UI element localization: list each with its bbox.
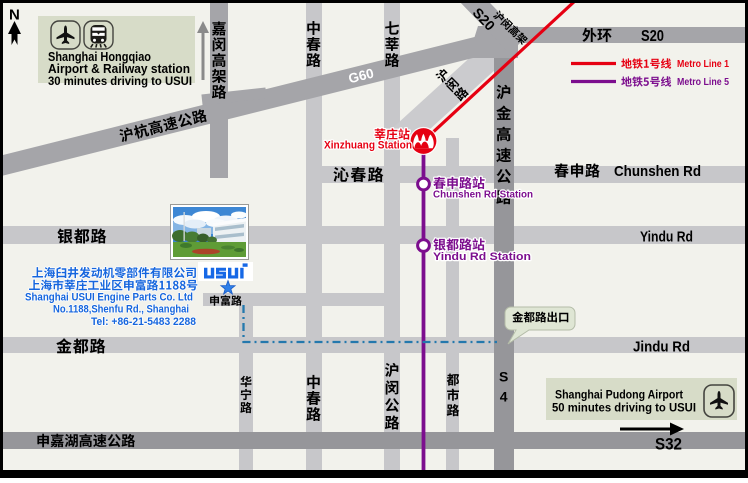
svg-text:Yindu Rd Station: Yindu Rd Station — [433, 251, 531, 263]
svg-text:S20: S20 — [641, 28, 664, 45]
svg-text:30 minutes driving to USUI: 30 minutes driving to USUI — [48, 74, 192, 88]
svg-text:S32: S32 — [655, 435, 682, 454]
svg-text:Chunshen Rd Station: Chunshen Rd Station — [433, 188, 533, 200]
svg-text:Chunshen Rd: Chunshen Rd — [614, 163, 701, 180]
svg-text:4: 4 — [500, 389, 508, 405]
svg-text:50 minutes driving to USUI: 50 minutes driving to USUI — [552, 400, 696, 414]
svg-text:Jindu Rd: Jindu Rd — [633, 339, 690, 356]
svg-text:S: S — [499, 369, 508, 385]
svg-text:Xinzhuang Station: Xinzhuang Station — [324, 140, 412, 152]
svg-text:Metro Line 1: Metro Line 1 — [677, 59, 729, 70]
svg-text:Metro Line 5: Metro Line 5 — [677, 77, 729, 88]
svg-text:Yindu Rd: Yindu Rd — [640, 229, 693, 246]
svg-text:No.1188,Shenfu Rd., Shanghai: No.1188,Shenfu Rd., Shanghai — [53, 304, 189, 316]
svg-text:Tel: +86-21-5483 2288: Tel: +86-21-5483 2288 — [91, 316, 196, 328]
svg-text:Shanghai USUI Engine Parts Co.: Shanghai USUI Engine Parts Co. Ltd — [25, 292, 193, 304]
svg-text:N: N — [9, 7, 20, 24]
svg-text:Shanghai Pudong Airport: Shanghai Pudong Airport — [555, 387, 683, 401]
